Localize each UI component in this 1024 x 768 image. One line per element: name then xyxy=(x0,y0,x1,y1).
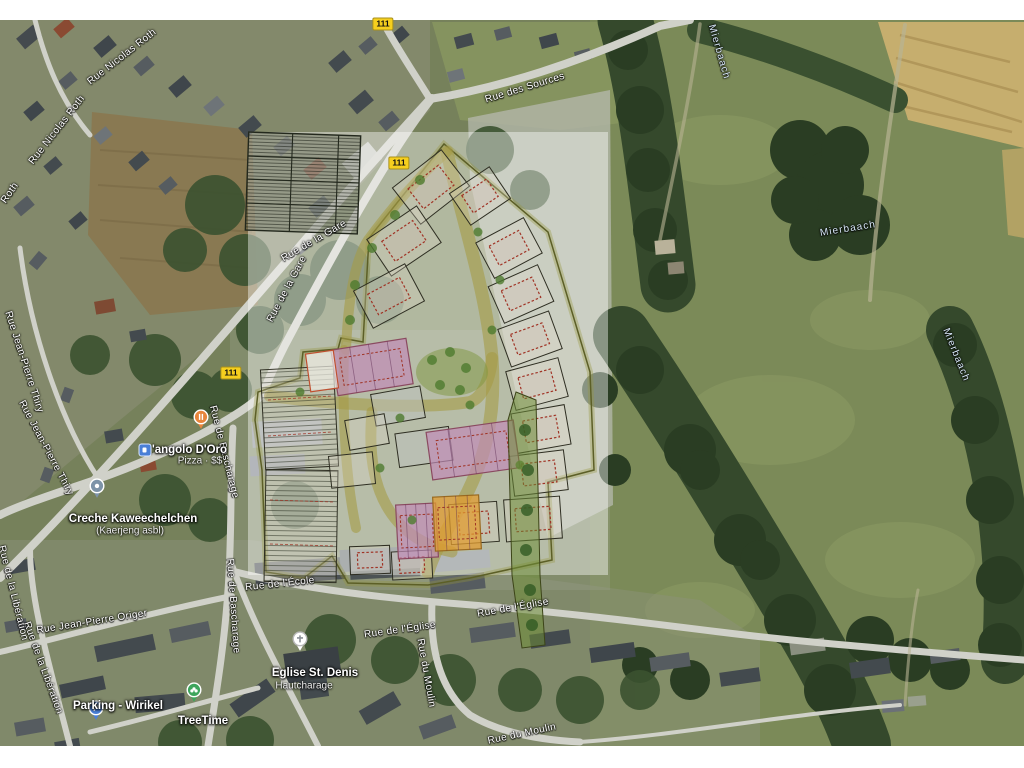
tree-cluster xyxy=(139,474,191,526)
tree-cluster xyxy=(158,720,202,764)
satellite-basemap[interactable] xyxy=(0,0,1024,768)
tree-cluster xyxy=(424,654,476,706)
tree-cluster xyxy=(129,334,181,386)
site-plan-overlay xyxy=(245,132,608,648)
allotment-grid xyxy=(245,132,360,234)
tree-cluster xyxy=(620,670,660,710)
building-roof xyxy=(654,239,675,255)
building-roof xyxy=(668,261,685,274)
tree-cluster xyxy=(185,175,245,235)
tree-cluster xyxy=(226,716,274,764)
plan-lot xyxy=(328,452,375,488)
tree-cluster xyxy=(498,668,542,712)
building-roof xyxy=(908,695,927,707)
tree-cluster xyxy=(70,335,110,375)
plan-lot xyxy=(345,414,390,450)
terraced-strips xyxy=(260,366,338,582)
plan-rowhouse-block-white xyxy=(305,350,338,392)
tree-cluster xyxy=(188,498,232,542)
tree-cluster xyxy=(163,228,207,272)
tree-cluster xyxy=(556,676,604,724)
plan-rowhouse-block-orange xyxy=(433,495,482,551)
plan-lot xyxy=(350,545,391,574)
plan-rowhouse-block-purple xyxy=(396,503,439,559)
tree-cluster xyxy=(371,636,419,684)
